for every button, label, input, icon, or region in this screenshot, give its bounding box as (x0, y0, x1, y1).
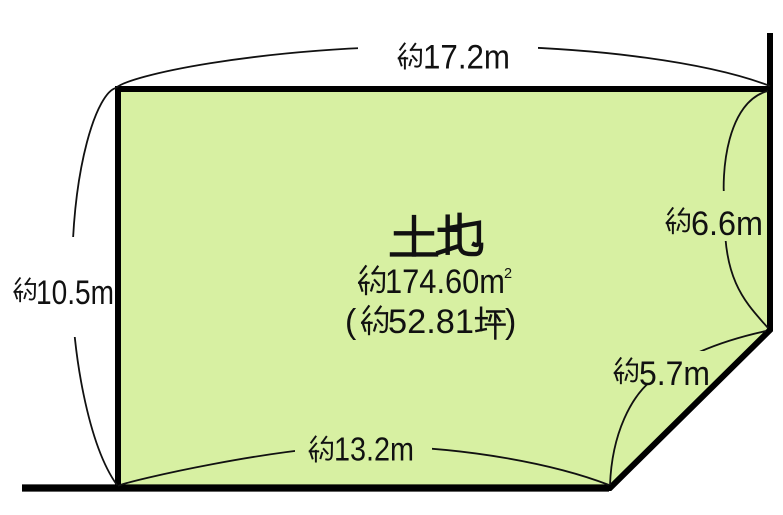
svg-text:): ) (505, 303, 516, 341)
svg-text:10.5m: 10.5m (36, 274, 114, 312)
svg-text:13.2m: 13.2m (334, 430, 414, 467)
svg-text:6.6m: 6.6m (691, 205, 763, 243)
svg-text:2: 2 (504, 266, 512, 282)
svg-text:17.2m: 17.2m (423, 38, 510, 76)
svg-text:52.81: 52.81 (388, 303, 474, 341)
svg-text:(: ( (345, 303, 357, 341)
svg-text:174.60m: 174.60m (385, 263, 505, 301)
svg-text:5.7m: 5.7m (639, 355, 710, 393)
